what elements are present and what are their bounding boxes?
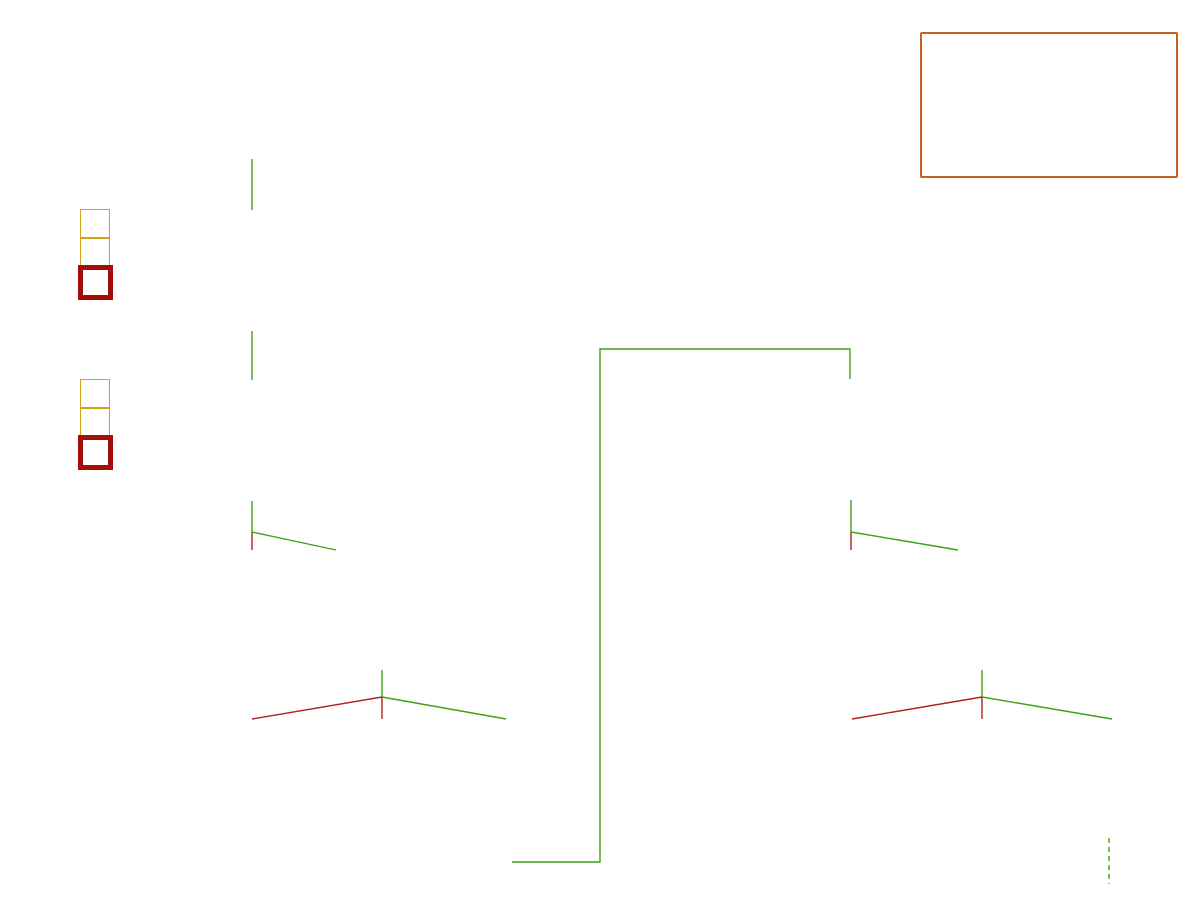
late-acceptance-diagram <box>0 0 1200 900</box>
connector-line <box>382 697 506 719</box>
connector-line <box>252 532 336 550</box>
late-list-current-cell <box>78 265 113 300</box>
connector-line <box>512 349 850 862</box>
late-list-cell <box>80 379 110 408</box>
iteration-note-box <box>920 32 1178 178</box>
late-list-cell <box>80 209 110 238</box>
connector-line <box>851 532 958 550</box>
late-list-cell <box>80 408 110 437</box>
connector-line <box>982 697 1112 719</box>
late-list-cell <box>80 238 110 267</box>
late-list-current-cell <box>78 435 113 470</box>
connector-line <box>852 697 982 719</box>
connector-line <box>252 697 382 719</box>
